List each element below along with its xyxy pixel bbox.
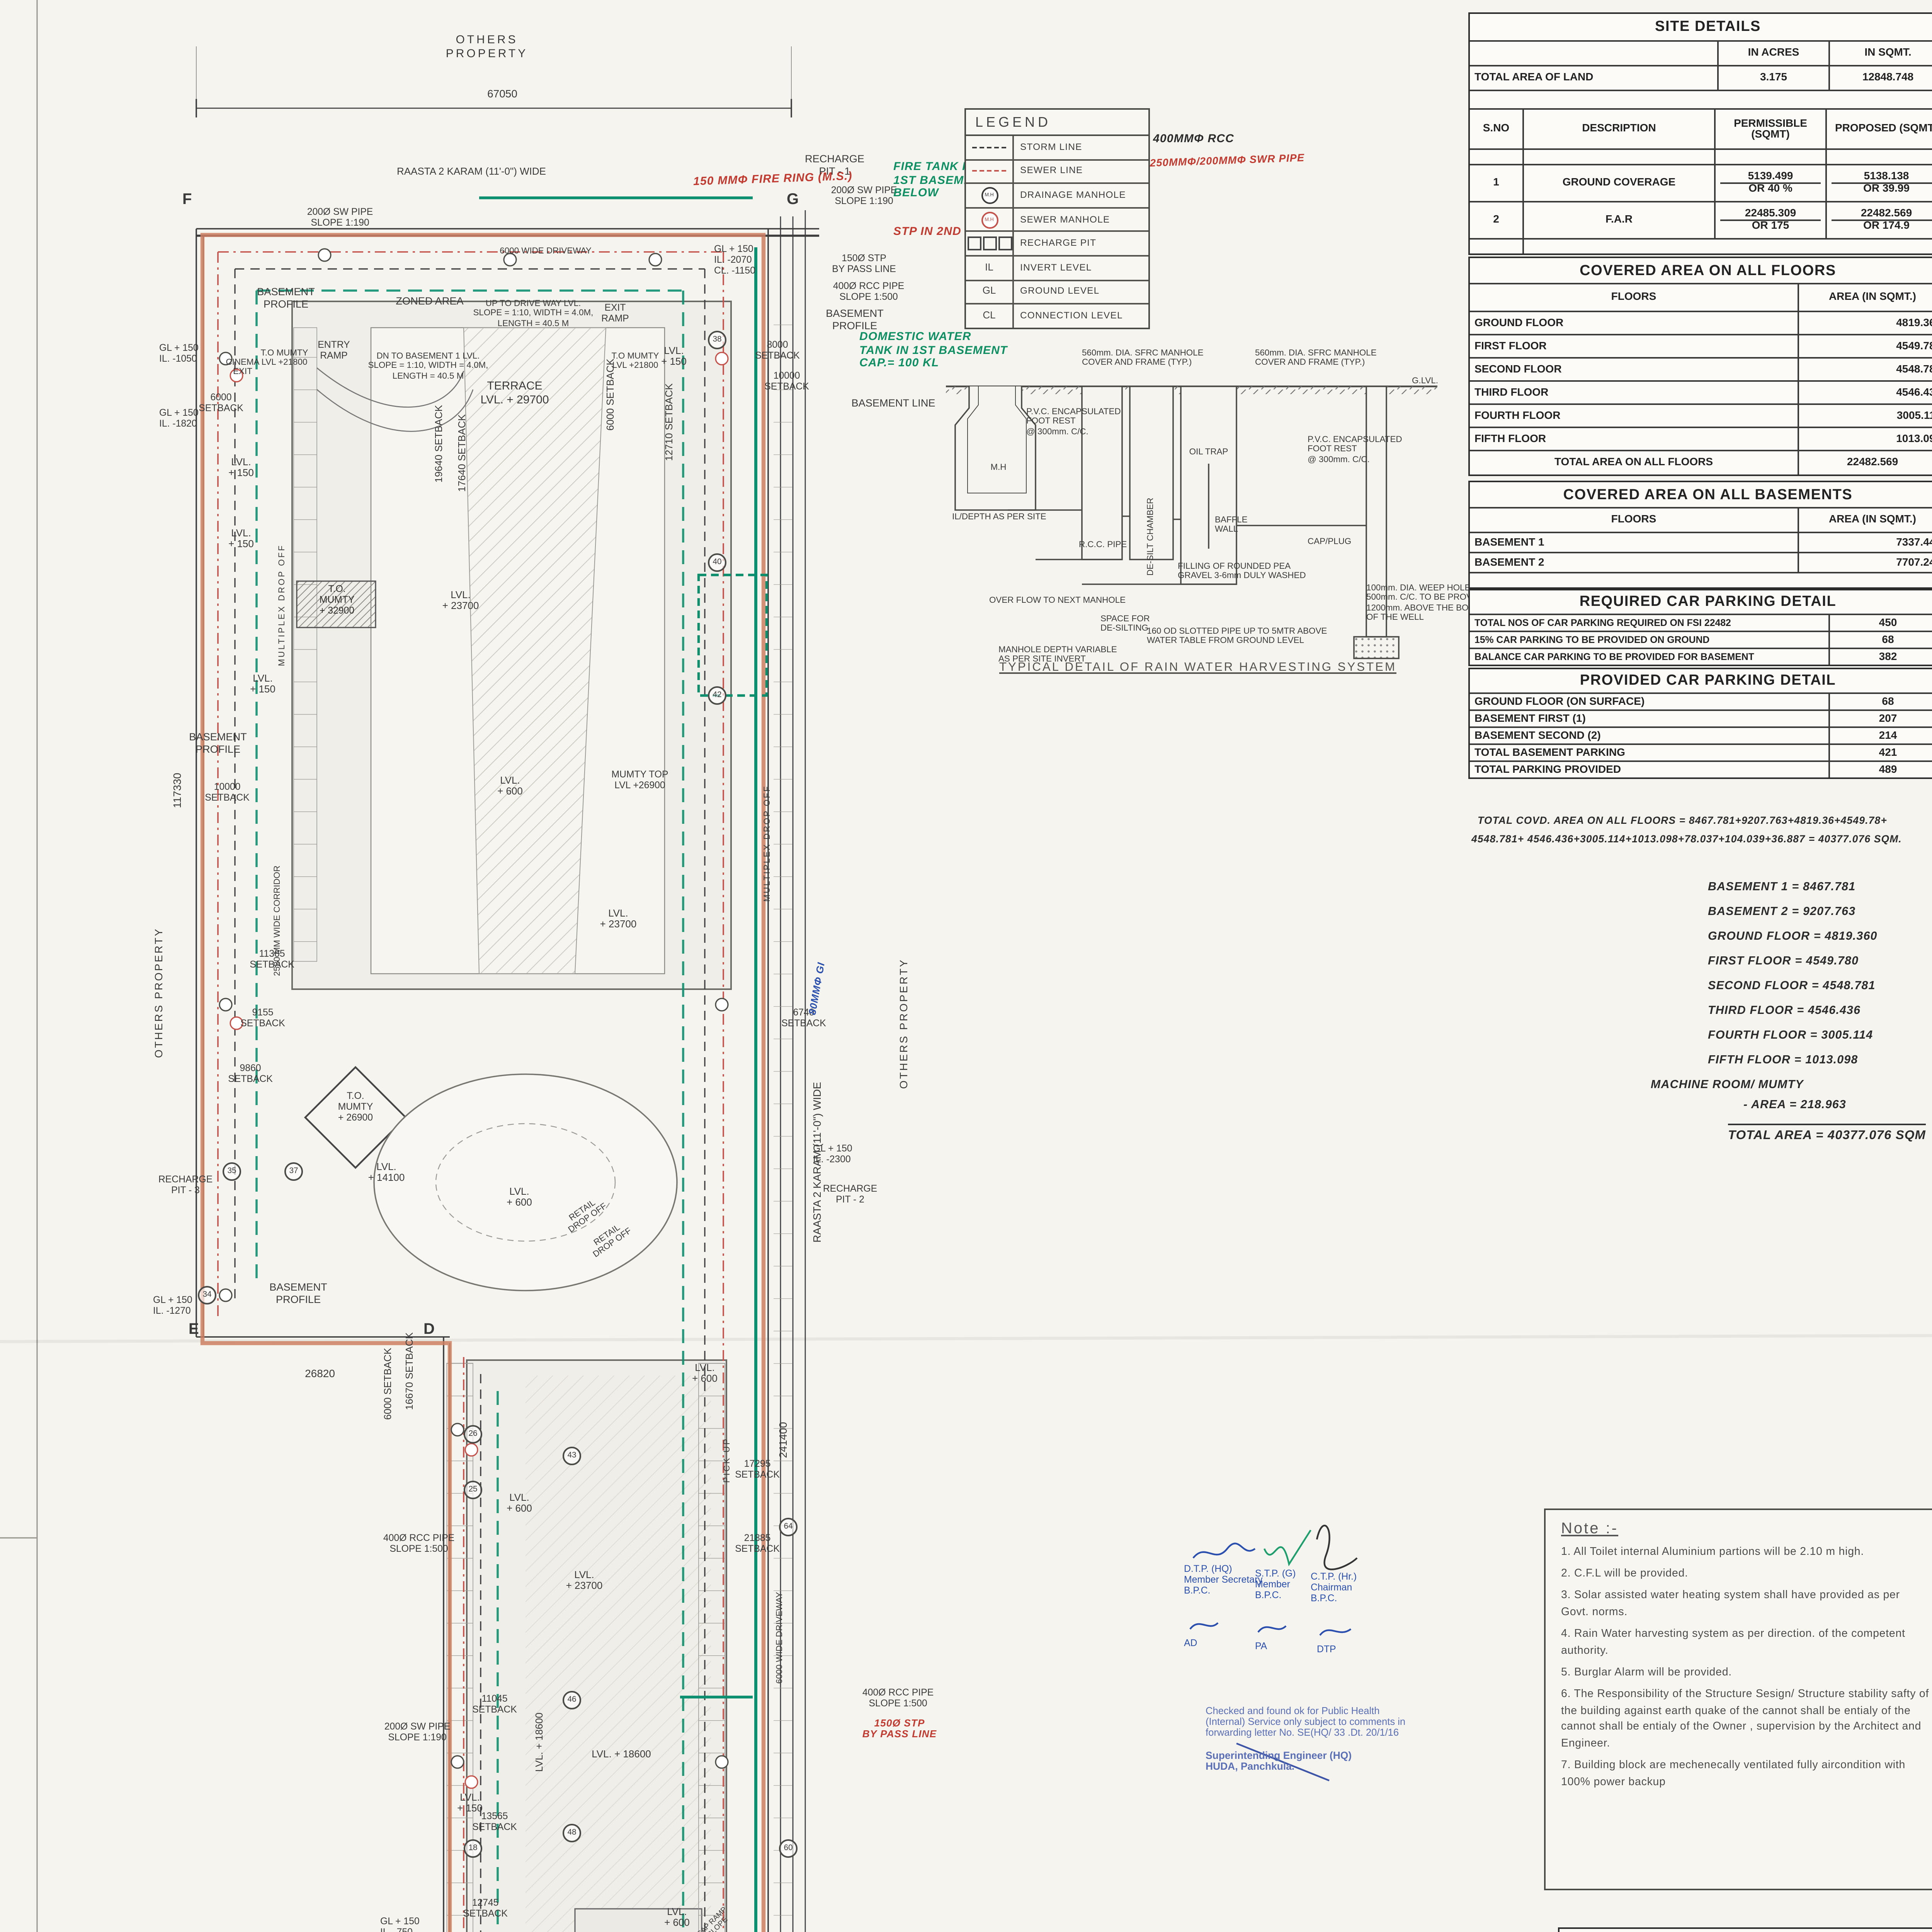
basement-line: BASEMENT LINE [835, 399, 952, 411]
hw-item-sf: SECOND FLOOR = 4548.781 [1708, 980, 1876, 993]
hw-sum-1: TOTAL COVD. AREA ON ALL FLOORS = 8467.78… [1478, 816, 1932, 828]
others-property-top: OTHERS PROPERTY [417, 34, 556, 60]
sewer-manhole-icon: M.H [981, 211, 998, 228]
r1-no: 1 [1470, 165, 1522, 201]
req-row-value: 450 [1828, 615, 1932, 631]
setback-6000-left-top: 6000 SETBACK [189, 393, 253, 415]
setback-9155: 9155 SETBACK [232, 1008, 294, 1030]
note-title: Note :- [1561, 1521, 1930, 1538]
req-row-label: 15% CAR PARKING TO BE PROVIDED ON GROUND [1470, 632, 1828, 648]
detail-ildepth: IL/DEPTH AS PER SITE [952, 513, 1046, 523]
setback-9860: 9860 SETBACK [219, 1063, 281, 1085]
floor-row-label: FIRST FLOOR [1470, 335, 1798, 357]
note-item-6: 6. The Responsibility of the Structure S… [1561, 1686, 1930, 1752]
legend-gl: GROUND LEVEL [1014, 286, 1148, 297]
mumty-top-26900: MUMTY TOP LVL +26900 [597, 770, 683, 792]
bpc-pa: PA [1255, 1641, 1267, 1652]
req-row-value: 382 [1828, 649, 1932, 665]
req-row-label: TOTAL NOS OF CAR PARKING REQUIRED ON FSI… [1470, 615, 1828, 631]
lvl-14100: LVL. + 14100 [352, 1162, 420, 1185]
setback-6000-mid-vert: 6000 SETBACK [383, 1348, 395, 1420]
detail-baffle: BAFFLE WALL [1215, 516, 1248, 536]
floor-row-label: THIRD FLOOR [1470, 382, 1798, 403]
entry-ramp: ENTRY RAMP [306, 340, 362, 362]
rcc-pipe-right-2: 400Ø RCC PIPE SLOPE 1:500 [847, 1688, 949, 1710]
col-in-sqmt: IN SQMT. [1828, 42, 1932, 65]
legend-il: INVERT LEVEL [1014, 262, 1148, 273]
prov-row-label: BASEMENT SECOND (2) [1470, 728, 1828, 743]
zoned-area-top: ZONED AREA [383, 297, 476, 309]
h-perm: PERMISSIBLE (SQMT) [1714, 110, 1825, 148]
note-item-1: 1. All Toilet internal Aluminium partion… [1561, 1544, 1930, 1561]
covered-basements-table: COVERED AREA ON ALL BASEMENTS FLOORS ARE… [1468, 481, 1932, 589]
floor-row-value: 1013.098 [1798, 428, 1932, 450]
provided-parking-table: PROVIDED CAR PARKING DETAIL GROUND FLOOR… [1468, 668, 1932, 779]
stp-bypass: 150Ø STP BY PASS LINE [819, 253, 909, 276]
r2-perm-b: OR 175 [1720, 221, 1821, 232]
bay-35: 35 [223, 1162, 241, 1181]
driveway-6000-top: 6000 WIDE DRIVEWAY [492, 247, 600, 257]
legend-rp: RECHARGE PIT [1014, 238, 1148, 249]
basement-row-value: 7337.448 [1798, 533, 1932, 552]
floor-row-label: FOURTH FLOOR [1470, 405, 1798, 427]
basement-profile-mid: BASEMENT PROFILE [263, 1283, 334, 1307]
bpc-stp: S.T.P. (G) Member B.P.C. [1255, 1569, 1296, 1602]
r2-perm-a: 22485.309 [1720, 209, 1821, 221]
detail-caption: TYPICAL DETAIL OF RAIN WATER HARVESTING … [989, 662, 1406, 675]
hw-item-4f: FOURTH FLOOR = 3005.114 [1708, 1029, 1873, 1043]
basement-row-label: BASEMENT 1 [1470, 533, 1798, 552]
hw-domestic-water: DOMESTIC WATER TANK IN 1ST BASEMENT CAP.… [859, 331, 1008, 371]
dn-to-basement-note: DN TO BASEMENT 1 LVL. SLOPE = 1:10, WIDT… [359, 352, 498, 382]
bay-26: 26 [464, 1425, 482, 1444]
hw-machine-room: MACHINE ROOM/ MUMTY [1651, 1079, 1804, 1092]
setback-8000: 8000 SETBACK [745, 340, 810, 362]
r1-prop-a: 5138.138 [1832, 172, 1932, 184]
floor-row-value: 4548.781 [1798, 359, 1932, 380]
prov-row-value: 207 [1828, 711, 1932, 726]
bpc-ad: AD [1184, 1638, 1197, 1649]
r1-perm-b: OR 40 % [1720, 184, 1821, 195]
lvl-150-rt: LVL. + 150 [649, 346, 699, 369]
setback-21885: 21885 SETBACK [723, 1533, 791, 1555]
detail-mh-cover-1: 560mm. DIA. SFRC MANHOLE COVER AND FRAME… [1082, 349, 1204, 369]
bay-18: 18 [464, 1839, 482, 1858]
sw-pipe-left-mid: 200Ø SW PIPE SLOPE 1:190 [368, 1722, 467, 1744]
floor-row-value: 4546.436 [1798, 382, 1932, 403]
driveway-6000-right: 6000 WIDE DRIVEWAY [776, 1592, 786, 1684]
bay-42: 42 [708, 686, 726, 705]
hw-item-gf: GROUND FLOOR = 4819.360 [1708, 930, 1878, 944]
gl-il-1270: GL + 150 IL. -1270 [153, 1295, 192, 1317]
prov-row-value: 489 [1828, 762, 1932, 777]
col-in-acres: IN ACRES [1717, 42, 1828, 65]
total-area-label: TOTAL AREA OF LAND [1470, 66, 1717, 90]
setback-11045: 11045 SETBACK [461, 1694, 529, 1716]
r1-desc: GROUND COVERAGE [1522, 165, 1714, 201]
basements-h2: AREA (IN SQMT.) [1798, 509, 1932, 532]
gl-il-1050: GL + 150 IL. -1050 [159, 343, 199, 365]
floor-row-label: SECOND FLOOR [1470, 359, 1798, 380]
basement-row-value: 7707.241 [1798, 553, 1932, 572]
req-row-value: 68 [1828, 632, 1932, 648]
floor-row-label: GROUND FLOOR [1470, 312, 1798, 334]
legend-cl-key: CL [966, 305, 1014, 327]
lvl-600-d: LVL. + 600 [492, 1493, 547, 1516]
detail-footrest-2: P.V.C. ENCAPSULATED FOOT REST @ 300mm. C… [1308, 436, 1402, 466]
lvl-600-a: LVL. + 600 [482, 776, 538, 799]
total-area-sqmt: 12848.748 [1828, 66, 1932, 90]
setback-12745: 12745 SETBACK [451, 1898, 519, 1920]
setback-17640: 17640 SETBACK [457, 414, 469, 492]
marker-e: E [189, 1321, 199, 1339]
legend-il-key: IL [966, 257, 1014, 279]
legend-title: LEGEND [966, 110, 1148, 136]
up-to-driveway-note: UP TO DRIVE WAY LVL. SLOPE = 1:10, WIDTH… [464, 300, 603, 330]
terrace-level: TERRACE LVL. + 29700 [464, 380, 566, 406]
lvl-18600-b: LVL. + 18600 [572, 1750, 671, 1761]
detail-capplug: CAP/PLUG [1308, 538, 1351, 548]
lvl-600-e: LVL. + 600 [649, 1907, 705, 1930]
site-details-title: SITE DETAILS [1470, 14, 1932, 40]
recharge-pit-3: RECHARGE PIT - 3 [148, 1175, 223, 1197]
floor-row-value: 3005.114 [1798, 405, 1932, 427]
detail-space-desilt: SPACE FOR DE-SILTING [1100, 615, 1150, 635]
hw-item-b1: BASEMENT 1 = 8467.781 [1708, 881, 1855, 895]
h-desc: DESCRIPTION [1522, 110, 1714, 148]
bpc-dtp: D.T.P. (HQ) Member Secretary B.P.C. [1184, 1564, 1263, 1597]
required-title: REQUIRED CAR PARKING DETAIL [1470, 590, 1932, 614]
floors-h2: AREA (IN SQMT.) [1798, 284, 1932, 311]
raasta-top: RAASTA 2 KARAM (11'-0") WIDE [371, 167, 572, 179]
bay-34: 34 [198, 1286, 216, 1304]
setback-16670: 16670 SETBACK [405, 1332, 417, 1410]
r1-perm-a: 5139.499 [1720, 172, 1821, 184]
hw-item-ff: FIRST FLOOR = 4549.780 [1708, 955, 1859, 969]
legend-smh: SEWER MANHOLE [1014, 214, 1148, 225]
marker-d: D [423, 1321, 435, 1339]
hw-item-5f: FIFTH FLOOR = 1013.098 [1708, 1054, 1858, 1068]
legend-storm: STORM LINE [1014, 142, 1148, 153]
prov-row-label: GROUND FLOOR (ON SURFACE) [1470, 694, 1828, 709]
stamp-line-2: (Internal) Service only subject to comme… [1206, 1717, 1453, 1728]
floors-total-label: TOTAL AREA ON ALL FLOORS [1470, 451, 1798, 474]
public-health-stamp: Checked and found ok for Public Health (… [1206, 1706, 1453, 1773]
stamp-line-1: Checked and found ok for Public Health [1206, 1706, 1453, 1717]
detail-glvl: G.LVL. [1403, 377, 1447, 387]
dim-241400: 241400 [779, 1422, 791, 1458]
r1-prop-b: OR 39.99 [1832, 184, 1932, 195]
rcc-pipe-left-mid: 400Ø RCC PIPE SLOPE 1:500 [368, 1533, 470, 1555]
legend-dmh: DRAINAGE MANHOLE [1014, 190, 1148, 201]
others-property-right: OTHERS PROPERTY [900, 958, 912, 1089]
gl-il-750: GL + 150 IL. -750 [380, 1917, 420, 1932]
stamp-line-4: Superintending Engineer (HQ) [1206, 1751, 1453, 1762]
lvl-600-b: LVL. + 600 [492, 1187, 547, 1210]
detail-rccpipe: R.C.C. PIPE [1079, 541, 1127, 551]
corridor-2520: 2520 MM WIDE CORRIDOR [274, 866, 284, 976]
bay-60: 60 [779, 1839, 798, 1858]
hw-item-b2: BASEMENT 2 = 9207.763 [1708, 906, 1855, 919]
sewer-line-symbol [972, 171, 1006, 172]
others-property-left: OTHERS PROPERTY [155, 927, 167, 1058]
hw-total-area: TOTAL AREA = 40377.076 SQM [1728, 1124, 1926, 1143]
r2-no: 2 [1470, 202, 1522, 238]
hw-item-tf: THIRD FLOOR = 4546.436 [1708, 1005, 1861, 1018]
note-item-4: 4. Rain Water harvesting system as per d… [1561, 1626, 1930, 1659]
h-sno: S.NO [1470, 110, 1522, 148]
r2-desc: F.A.R [1522, 202, 1714, 238]
floors-title: COVERED AREA ON ALL FLOORS [1470, 258, 1932, 283]
dim-67050: 67050 [471, 90, 533, 102]
detail-overflow: OVER FLOW TO NEXT MANHOLE [989, 597, 1126, 607]
covered-floors-table: COVERED AREA ON ALL FLOORS FLOORS AREA (… [1468, 257, 1932, 476]
lvl-23700-a: LVL. + 23700 [427, 590, 495, 613]
detail-oiltrap: OIL TRAP [1181, 448, 1236, 458]
bpc-dtp2: DTP [1317, 1645, 1336, 1655]
prov-row-value: 214 [1828, 728, 1932, 743]
floors-h1: FLOORS [1470, 284, 1798, 311]
marker-f: F [182, 192, 192, 209]
note-box: Note :- 1. All Toilet internal Aluminium… [1544, 1509, 1932, 1890]
setback-10000-left: 10000 SETBACK [192, 782, 263, 804]
prov-row-label: TOTAL BASEMENT PARKING [1470, 745, 1828, 760]
lvl-23700-c: LVL. + 23700 [550, 1570, 618, 1593]
bay-46: 46 [563, 1691, 581, 1709]
detail-mh-cover-2: 560mm. DIA. SFRC MANHOLE COVER AND FRAME… [1255, 349, 1377, 369]
detail-pea: FILLING OF ROUNDED PEA GRAVEL 3-6mm DULY… [1178, 563, 1306, 582]
provided-title: PROVIDED CAR PARKING DETAIL [1470, 669, 1932, 692]
to-mumty-32900: T.O. MUMTY + 32900 [303, 584, 371, 617]
r2-prop-b: OR 174.9 [1832, 221, 1932, 232]
note-item-7: 7. Building block are mechenecally venti… [1561, 1757, 1930, 1790]
note-item-3: 3. Solar assisted water heating system s… [1561, 1588, 1930, 1621]
legend-gl-key: GL [966, 281, 1014, 303]
total-area-acres: 3.175 [1717, 66, 1828, 90]
lvl-150-d: LVL. + 150 [445, 1793, 495, 1816]
legend-box: LEGEND STORM LINE SEWER LINE M.HDRAINAGE… [964, 108, 1150, 329]
detail-slotted: 160 OD SLOTTED PIPE UP TO 5MTR ABOVE WAT… [1147, 628, 1327, 647]
setback-6740: 6740 SETBACK [773, 1008, 835, 1030]
bpc-ctp: C.T.P. (Hr.) Chairman B.P.C. [1311, 1572, 1357, 1605]
detail-desilt: DE-SILT CHAMBER [1147, 498, 1157, 576]
hw-machine-area: - AREA = 218.963 [1743, 1099, 1846, 1112]
required-parking-table: REQUIRED CAR PARKING DETAIL TOTAL NOS OF… [1468, 589, 1932, 666]
setback-17295: 17295 SETBACK [723, 1459, 791, 1481]
prov-row-value: 421 [1828, 745, 1932, 760]
note-item-5: 5. Burglar Alarm will be provided. [1561, 1664, 1930, 1681]
detail-mh: M.H [983, 464, 1014, 474]
floor-row-label: FIFTH FLOOR [1470, 428, 1798, 450]
lvl-150-c: LVL. + 150 [238, 674, 287, 697]
floors-total: 22482.569 [1798, 451, 1932, 474]
ink-signatures [1716, 1898, 1932, 1932]
to-mumty-21800-left: T.O MUMTY LVL +21800 [255, 349, 314, 369]
req-row-label: BALANCE CAR PARKING TO BE PROVIDED FOR B… [1470, 649, 1828, 665]
multiplex-dropoff-right: MULTIPLEX DROP OFF [764, 785, 774, 902]
detail-footrest-1: P.V.C. ENCAPSULATED FOOT REST @ 300mm. C… [1026, 408, 1121, 438]
bay-40: 40 [708, 553, 726, 572]
hw-sum-2: 4548.781+ 4546.436+3005.114+1013.098+78.… [1471, 835, 1932, 846]
exit-ramp: EXIT RAMP [590, 303, 640, 325]
hw-storm-size: 400MMΦ RCC [1153, 133, 1234, 146]
dim-117330: 117330 [173, 773, 185, 808]
bay-25: 25 [464, 1481, 482, 1499]
basement-profile-left: BASEMENT PROFILE [182, 733, 253, 757]
stamp-line-5: HUDA, Panchkula. [1206, 1762, 1453, 1773]
h-prop: PROPOSED (SQMT) [1825, 110, 1932, 148]
setback-19640: 19640 SETBACK [434, 405, 446, 483]
recharge-pit-1: RECHARGE PIT - 1 [798, 155, 872, 179]
bay-48: 48 [563, 1824, 581, 1842]
floor-row-value: 4819.360 [1798, 312, 1932, 334]
marker-g: G [787, 192, 799, 209]
basements-h1: FLOORS [1470, 509, 1798, 532]
floor-row-value: 4549.780 [1798, 335, 1932, 357]
stamp-line-3: forwarding letter No. SE(HQ/ 33 .Dt. 20/… [1206, 1728, 1453, 1739]
drawing-sheet: OTHERS PROPERTY 67050 F G RAASTA 2 KARAM… [0, 0, 1932, 1932]
legend-sewer: SEWER LINE [1014, 166, 1148, 177]
site-details-table: SITE DETAILS IN ACRES IN SQMT. TOTAL ARE… [1468, 12, 1932, 255]
bay-43: 43 [563, 1447, 581, 1465]
lvl-150-b: LVL. + 150 [216, 529, 266, 551]
bay-37: 37 [284, 1162, 303, 1181]
sw-pipe-top: 200Ø SW PIPE SLOPE 1:190 [294, 207, 386, 229]
prov-row-label: BASEMENT FIRST (1) [1470, 711, 1828, 726]
note-item-2: 2. C.F.L will be provided. [1561, 1566, 1930, 1583]
dim-26820: 26820 [286, 1369, 354, 1382]
prov-row-label: TOTAL PARKING PROVIDED [1470, 762, 1828, 777]
basement-row-label: BASEMENT 2 [1470, 553, 1798, 572]
to-mumty-26900: T.O. MUMTY + 26900 [321, 1091, 389, 1124]
r2-prop-a: 22482.569 [1832, 209, 1932, 221]
lvl-600-c: LVL. + 600 [677, 1363, 733, 1386]
setback-11385: 11385 SETBACK [238, 949, 306, 971]
raasta-right: RAASTA 2 KARAM (11'-0") WIDE [813, 1082, 825, 1243]
rcc-pipe-right: 400Ø RCC PIPE SLOPE 1:500 [819, 281, 918, 303]
bay-64: 64 [779, 1518, 798, 1536]
gl-il-2070: GL + 150 IL. -2070 CL. -1150 [714, 244, 755, 277]
drainage-manhole-icon: M.H [981, 187, 998, 204]
basement-profile-top: BASEMENT PROFILE [250, 287, 321, 311]
bay-38: 38 [708, 331, 726, 349]
basements-title: COVERED AREA ON ALL BASEMENTS [1470, 482, 1932, 507]
setback-12710: 12710 SETBACK [665, 383, 676, 461]
lvl-23700-b: LVL. + 23700 [584, 909, 652, 932]
multiplex-dropoff-left: MULTIPLEX DROP OFF [278, 544, 288, 666]
lvl-150-a: LVL. + 150 [216, 457, 266, 480]
prov-row-value: 68 [1828, 694, 1932, 709]
setback-10000-rt: 10000 SETBACK [751, 371, 822, 393]
storm-line-symbol [972, 146, 1006, 148]
lvl-18600-vert: LVL. + 18600 [535, 1713, 546, 1772]
legend-cl: CONNECTION LEVEL [1014, 311, 1148, 321]
hw-stp-bypass: 150Ø STP BY PASS LINE [853, 1719, 946, 1742]
signature-block: For AMB Infraventures Private Limited Di… [1558, 1927, 1932, 1932]
recharge-pit-icon [967, 237, 1012, 251]
